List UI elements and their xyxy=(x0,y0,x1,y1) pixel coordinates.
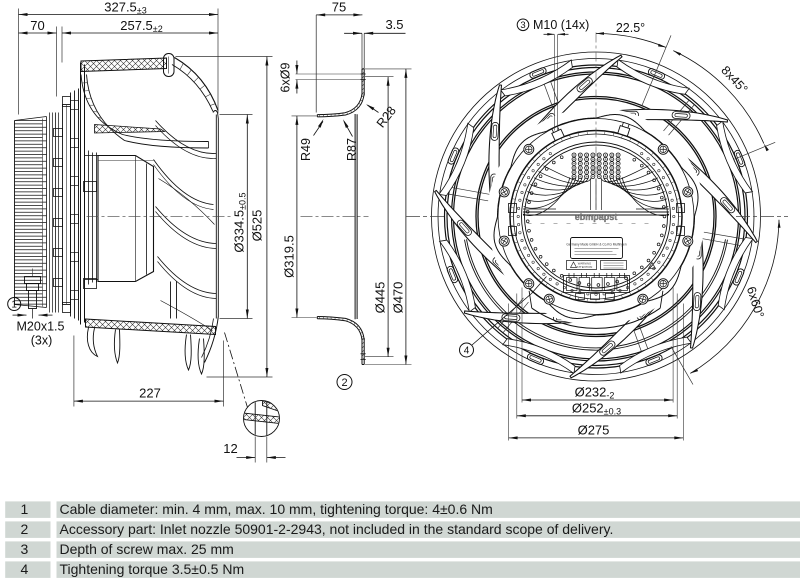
svg-text:3: 3 xyxy=(21,541,29,557)
svg-text:70: 70 xyxy=(30,18,44,33)
svg-text:Cable diameter: min. 4 mm, max: Cable diameter: min. 4 mm, max. 10 mm, t… xyxy=(60,501,493,517)
svg-text:6xØ9: 6xØ9 xyxy=(279,63,293,93)
svg-text:1: 1 xyxy=(21,501,29,517)
svg-text:Germany Made GmbH & Co.KG Mulf: Germany Made GmbH & Co.KG Mulfingen xyxy=(566,243,626,247)
svg-text:22.5°: 22.5° xyxy=(616,21,645,35)
svg-text:4: 4 xyxy=(464,346,470,357)
svg-text:ATTENTION: ATTENTION xyxy=(577,265,593,269)
svg-text:Ø445: Ø445 xyxy=(373,282,388,314)
svg-text:M10 (14x): M10 (14x) xyxy=(533,18,589,32)
svg-text:12: 12 xyxy=(223,441,237,456)
svg-text:Ø470: Ø470 xyxy=(391,282,406,314)
svg-text:Ø319.5: Ø319.5 xyxy=(282,235,297,278)
svg-text:Tightening torque 3.5±0.5 Nm: Tightening torque 3.5±0.5 Nm xyxy=(60,561,245,577)
svg-text:75: 75 xyxy=(332,0,346,15)
svg-text:3: 3 xyxy=(520,20,525,31)
svg-text:Ø525: Ø525 xyxy=(250,210,265,242)
svg-text:M20x1.5: M20x1.5 xyxy=(17,320,65,334)
svg-text:Accessory part: Inlet nozzle 5: Accessory part: Inlet nozzle 50901-2-294… xyxy=(60,521,614,537)
svg-text:Ø275: Ø275 xyxy=(578,423,610,438)
svg-text:3.5: 3.5 xyxy=(385,17,403,32)
svg-text:2: 2 xyxy=(21,521,29,537)
svg-text:R49: R49 xyxy=(299,138,313,161)
svg-text:(3x): (3x) xyxy=(31,334,53,348)
svg-text:ebmpapst: ebmpapst xyxy=(575,212,618,222)
svg-text:Depth of screw max. 25 mm: Depth of screw max. 25 mm xyxy=(60,541,234,557)
svg-text:4: 4 xyxy=(21,561,29,577)
svg-text:1: 1 xyxy=(11,300,17,311)
svg-text:2: 2 xyxy=(341,377,347,389)
svg-text:227: 227 xyxy=(139,386,161,401)
svg-text:R87: R87 xyxy=(345,138,359,161)
